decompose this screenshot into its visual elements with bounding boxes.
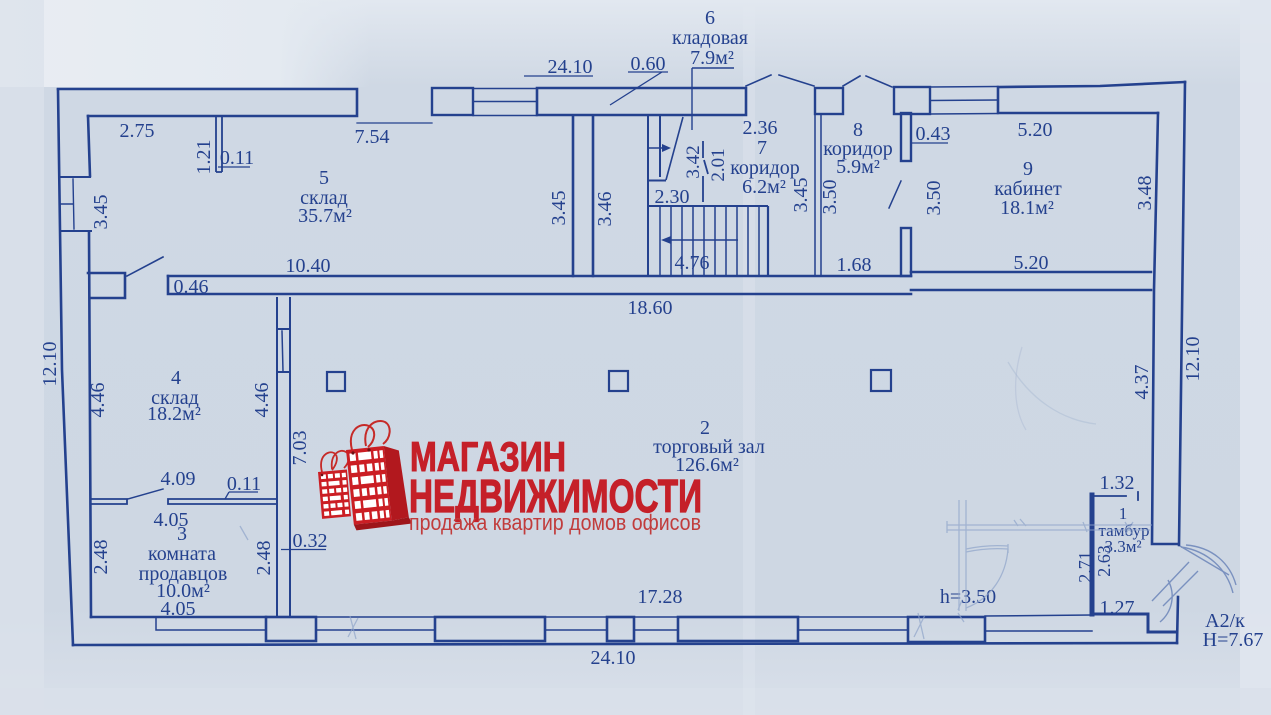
- svg-text:2.48: 2.48: [253, 541, 275, 576]
- svg-text:3.45: 3.45: [790, 178, 812, 213]
- svg-text:1.68: 1.68: [837, 254, 872, 276]
- svg-text:4.05: 4.05: [161, 598, 196, 620]
- svg-text:h=3.50: h=3.50: [940, 586, 996, 608]
- svg-text:6: 6: [705, 7, 715, 29]
- svg-text:2.63: 2.63: [1094, 545, 1114, 577]
- svg-text:4.46: 4.46: [87, 383, 109, 418]
- svg-text:1.27: 1.27: [1100, 597, 1135, 619]
- svg-text:2.48: 2.48: [90, 540, 112, 575]
- svg-text:1.21: 1.21: [193, 140, 215, 175]
- svg-text:5.9м²: 5.9м²: [836, 156, 880, 178]
- svg-text:0.11: 0.11: [227, 473, 261, 495]
- svg-text:0.43: 0.43: [916, 123, 951, 145]
- svg-text:3: 3: [177, 523, 187, 545]
- svg-text:6.2м²: 6.2м²: [742, 176, 786, 198]
- svg-text:7: 7: [757, 137, 767, 159]
- svg-text:0.46: 0.46: [174, 276, 209, 298]
- svg-text:3.48: 3.48: [1134, 176, 1156, 211]
- svg-text:18.2м²: 18.2м²: [147, 403, 201, 425]
- svg-text:5: 5: [319, 167, 329, 189]
- svg-text:4.46: 4.46: [251, 383, 273, 418]
- svg-text:2.01: 2.01: [708, 148, 729, 181]
- svg-text:0.60: 0.60: [631, 53, 666, 75]
- svg-text:12.10: 12.10: [1182, 337, 1204, 382]
- svg-text:3.42: 3.42: [683, 145, 704, 178]
- svg-text:18.1м²: 18.1м²: [1000, 197, 1054, 219]
- svg-text:Н=7.67: Н=7.67: [1203, 629, 1264, 651]
- svg-text:2.71: 2.71: [1075, 551, 1095, 583]
- svg-text:7.54: 7.54: [355, 126, 390, 148]
- svg-text:5.20: 5.20: [1014, 252, 1049, 274]
- svg-text:18.60: 18.60: [628, 297, 673, 319]
- svg-text:4.37: 4.37: [1131, 365, 1153, 400]
- svg-text:4: 4: [171, 367, 181, 389]
- svg-text:4.76: 4.76: [675, 252, 710, 274]
- svg-text:24.10: 24.10: [548, 56, 593, 78]
- svg-text:0.11: 0.11: [220, 147, 254, 169]
- svg-text:12.10: 12.10: [39, 342, 61, 387]
- svg-text:1.32: 1.32: [1100, 472, 1135, 494]
- svg-text:9: 9: [1023, 158, 1033, 180]
- svg-text:24.10: 24.10: [591, 647, 636, 669]
- svg-text:3.46: 3.46: [594, 192, 616, 227]
- svg-text:7.9м²: 7.9м²: [690, 47, 734, 69]
- svg-text:3.45: 3.45: [548, 191, 570, 226]
- svg-text:продажа квартир домов офисов: продажа квартир домов офисов: [409, 510, 701, 535]
- svg-text:17.28: 17.28: [638, 586, 683, 608]
- svg-text:0.32: 0.32: [293, 530, 328, 552]
- svg-text:35.7м²: 35.7м²: [298, 205, 352, 227]
- svg-text:2.75: 2.75: [120, 120, 155, 142]
- svg-text:3.50: 3.50: [819, 180, 841, 215]
- svg-text:5.20: 5.20: [1018, 119, 1053, 141]
- svg-text:кладовая: кладовая: [672, 27, 748, 49]
- svg-text:3.50: 3.50: [923, 181, 945, 216]
- svg-text:7.03: 7.03: [289, 431, 311, 466]
- svg-text:4.09: 4.09: [161, 468, 196, 490]
- svg-text:3.45: 3.45: [90, 195, 112, 230]
- svg-text:2.30: 2.30: [655, 186, 690, 208]
- svg-text:2.36: 2.36: [743, 117, 778, 139]
- svg-text:комната: комната: [148, 543, 216, 565]
- svg-text:10.40: 10.40: [286, 255, 331, 277]
